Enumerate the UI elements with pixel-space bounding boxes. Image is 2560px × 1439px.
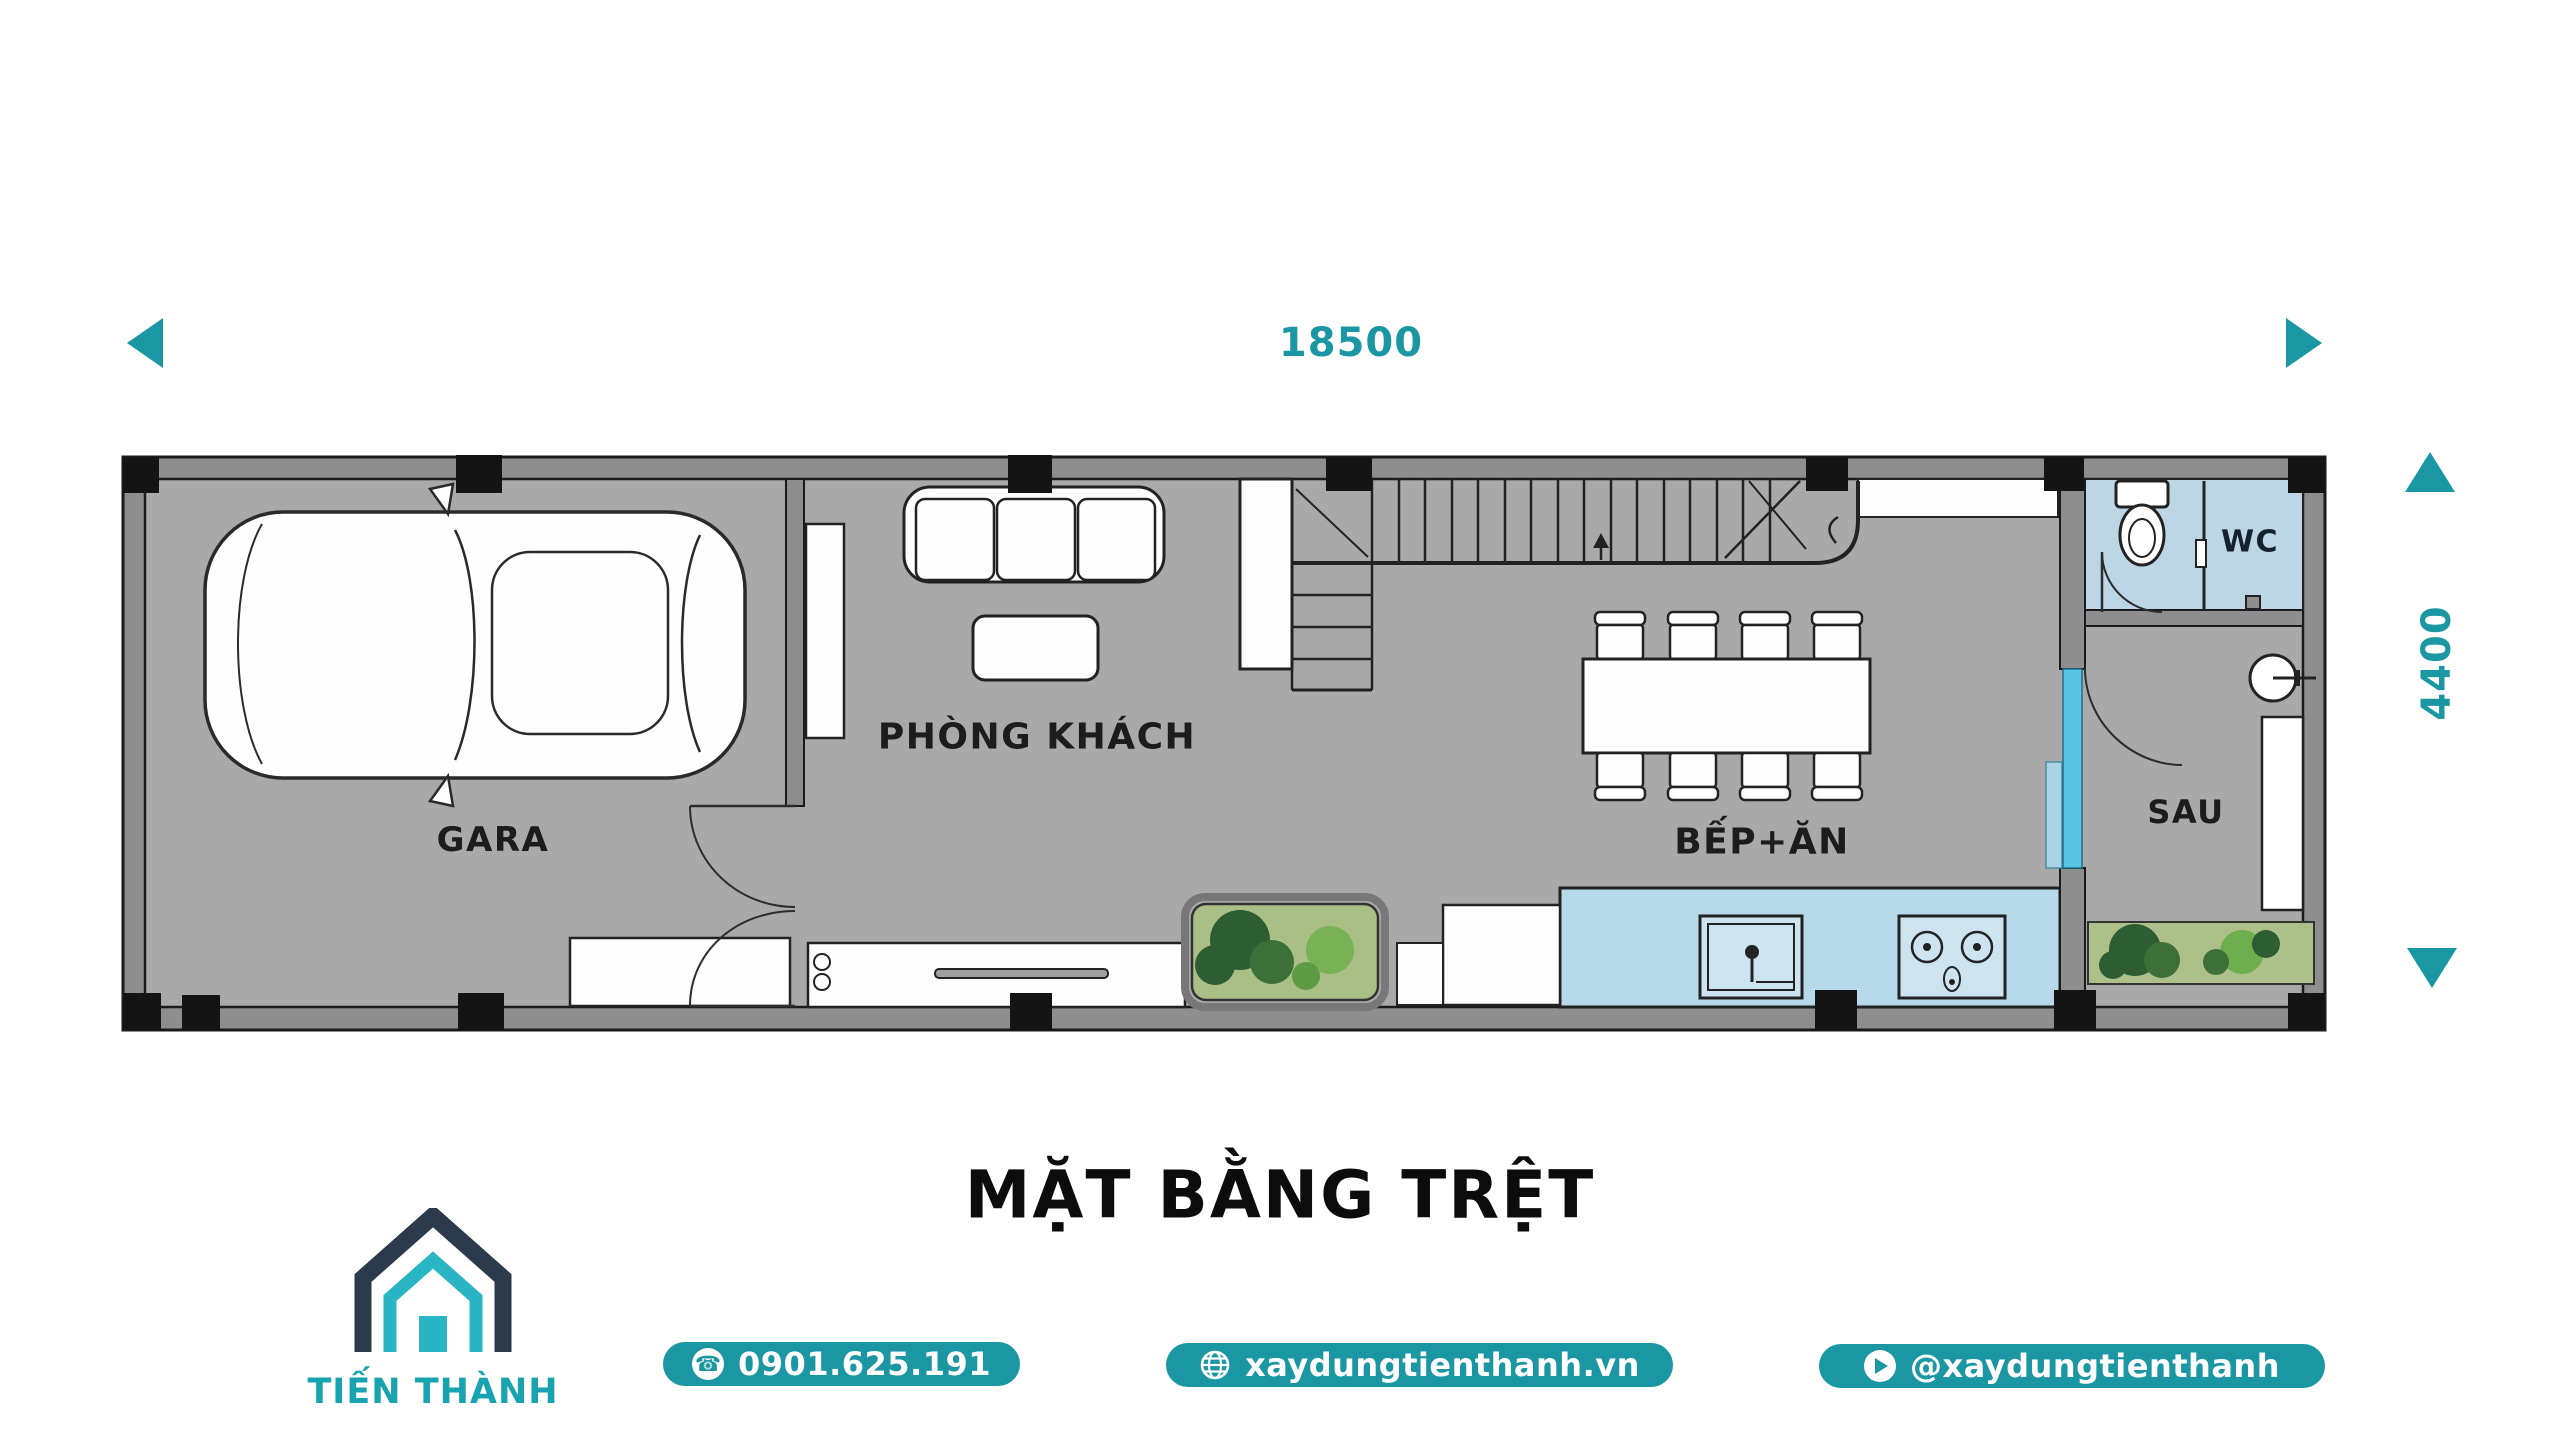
coffee-table <box>973 616 1098 680</box>
wc-sau-wall <box>2085 610 2303 626</box>
kitchen-counter <box>1397 888 2060 1007</box>
phone-number: 0901.625.191 <box>738 1345 991 1383</box>
living-cabinet <box>806 524 844 738</box>
arrow-up-icon <box>2405 452 2455 492</box>
globe-icon <box>1199 1349 1231 1381</box>
kitchen-sink <box>1700 916 1802 998</box>
glass-sliding-door <box>2063 669 2082 868</box>
arrow-down-icon <box>2407 948 2457 988</box>
kitchen-window-segment <box>1397 943 1443 1005</box>
dimension-depth: 4400 <box>2414 605 2460 720</box>
glass-door-panel <box>2046 762 2062 868</box>
youtube-icon <box>1864 1350 1896 1382</box>
stair-landing <box>1240 479 1292 669</box>
tv-console <box>808 943 1185 1007</box>
kitchen-sau-wall-lower <box>2060 868 2085 1007</box>
room-label-garage: GARA <box>437 820 550 860</box>
website-url: xaydungtienthanh.vn <box>1245 1346 1640 1384</box>
brand-name: TIẾN THÀNH <box>307 1372 558 1412</box>
garage-window-bench <box>570 938 790 1006</box>
dining-table <box>1583 659 1870 753</box>
youtube-handle: @xaydungtienthanh <box>1910 1347 2280 1385</box>
arrow-right-icon <box>2286 318 2322 368</box>
dimension-width: 18500 <box>1279 320 1423 366</box>
tv <box>935 969 1108 978</box>
toilet <box>2116 481 2168 565</box>
youtube-button[interactable]: @xaydungtienthanh <box>1819 1344 2325 1388</box>
arrow-left-icon <box>127 318 163 368</box>
phone-button[interactable]: ☎ 0901.625.191 <box>663 1342 1020 1386</box>
car <box>205 484 745 806</box>
sofa <box>904 487 1164 582</box>
kitchen-cabinet <box>1443 905 1560 1005</box>
sau-planter <box>2088 922 2314 984</box>
brand-logo-icon <box>350 1208 516 1358</box>
living-planter <box>1185 897 1385 1007</box>
kitchen-cooktop <box>1899 916 2005 998</box>
website-button[interactable]: xaydungtienthanh.vn <box>1166 1343 1673 1387</box>
kitchen-sau-wall-upper <box>2060 479 2085 669</box>
floor-plan-page: 18500 4400 GARA PHÒNG KHÁCH BẾP+ĂN WC SA… <box>0 0 2560 1439</box>
room-label-wc: WC <box>2221 525 2279 560</box>
garage-living-wall <box>786 479 804 806</box>
page-title: MẶT BẰNG TRỆT <box>965 1157 1595 1234</box>
room-label-back: SAU <box>2147 793 2224 831</box>
room-label-kitchen-dining: BẾP+ĂN <box>1674 822 1850 863</box>
top-window-strip <box>1858 479 2058 517</box>
phone-icon: ☎ <box>692 1348 724 1380</box>
sau-counter <box>2262 717 2303 910</box>
room-label-living: PHÒNG KHÁCH <box>878 717 1196 758</box>
